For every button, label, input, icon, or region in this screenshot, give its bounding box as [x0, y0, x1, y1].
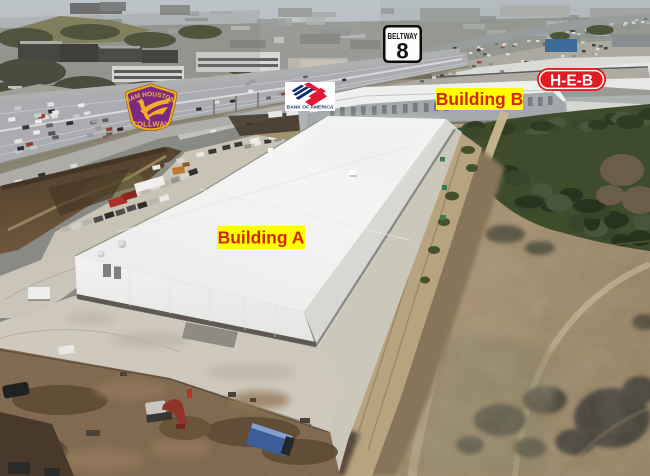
svg-text:TOLLWAY: TOLLWAY [132, 120, 169, 129]
svg-text:Building B: Building B [436, 89, 523, 109]
svg-text:Building A: Building A [218, 228, 305, 248]
svg-text:8: 8 [396, 39, 408, 64]
svg-text:BANK OF AMERICA: BANK OF AMERICA [287, 105, 335, 110]
svg-text:H-E-B: H-E-B [550, 73, 593, 90]
